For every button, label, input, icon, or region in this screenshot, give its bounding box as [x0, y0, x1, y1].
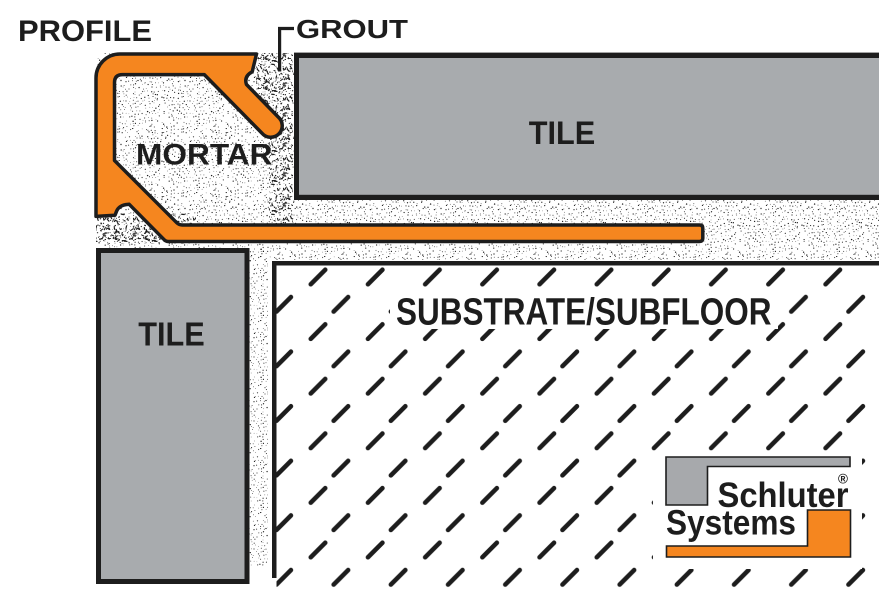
svg-text:TILE: TILE	[529, 115, 596, 151]
svg-text:TILE: TILE	[138, 316, 205, 353]
svg-text:®: ®	[838, 472, 848, 487]
svg-text:GROUT: GROUT	[296, 14, 408, 44]
svg-text:MORTAR: MORTAR	[136, 139, 273, 172]
svg-text:PROFILE: PROFILE	[18, 15, 152, 48]
svg-text:SUBSTRATE/SUBFLOOR: SUBSTRATE/SUBFLOOR	[396, 292, 772, 334]
svg-text:Systems: Systems	[666, 504, 796, 543]
